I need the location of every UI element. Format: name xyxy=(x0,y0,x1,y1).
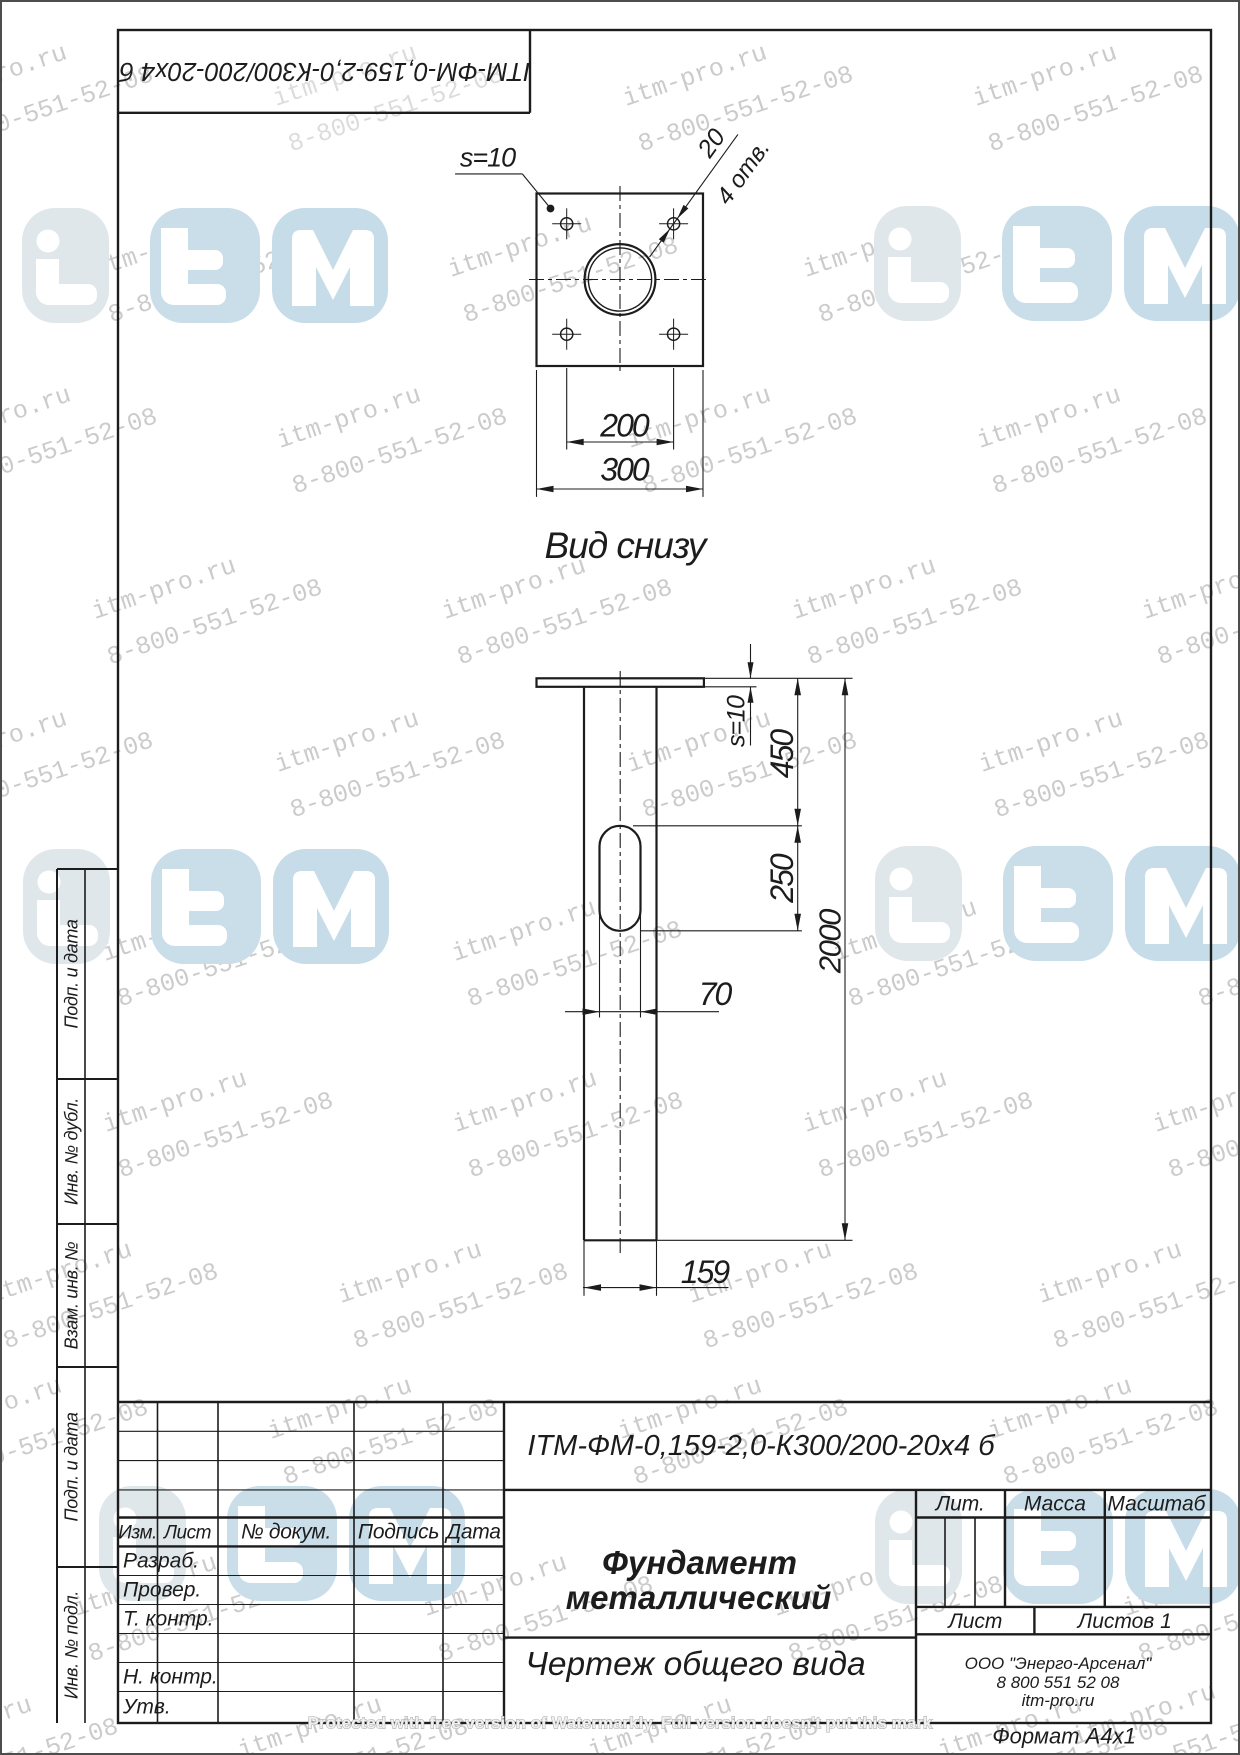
svg-text:Protected with free version of: Protected with free version of Watermark… xyxy=(308,1714,933,1733)
